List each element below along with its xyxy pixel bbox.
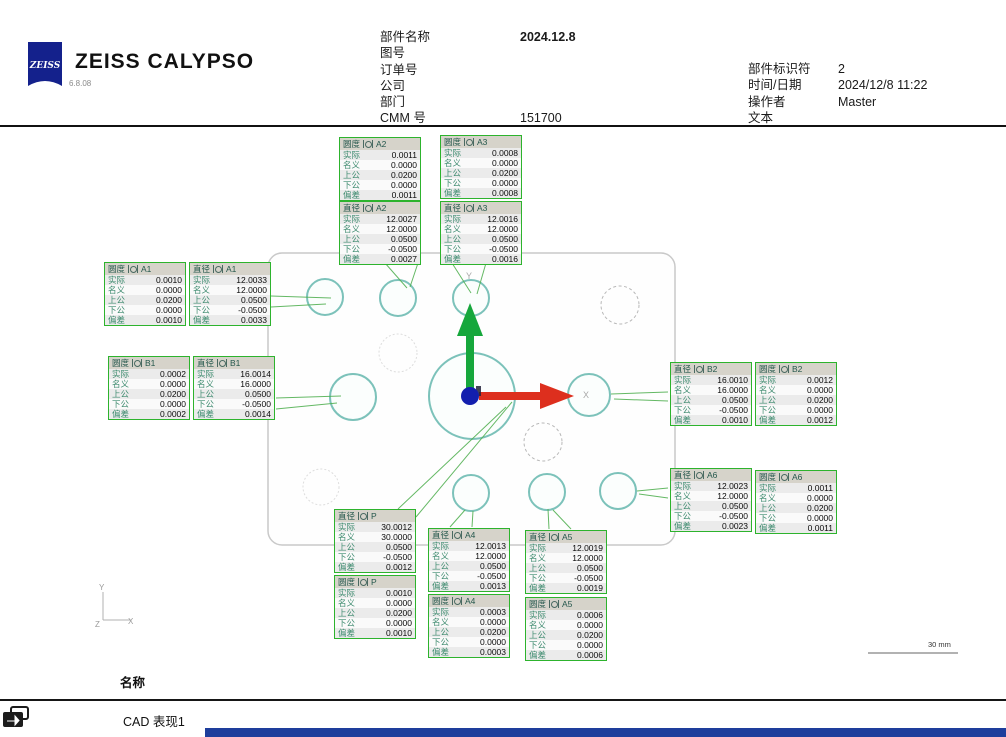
callout-row-upper_tol: 上公0.0500 — [671, 395, 751, 405]
row-label: 下公 — [338, 552, 355, 562]
row-value: 0.0500 — [386, 542, 412, 552]
row-value: 0.0012 — [386, 562, 412, 572]
callout-row-nominal: 名义0.0000 — [335, 598, 415, 608]
feature-name: A4 — [465, 530, 475, 540]
row-label: 偏差 — [112, 409, 129, 419]
characteristic-type: 圆度 — [759, 471, 776, 483]
callout-row-upper_tol: 上公0.0200 — [335, 608, 415, 618]
row-value: -0.0500 — [719, 511, 748, 521]
callout-row-nominal: 名义0.0000 — [441, 158, 521, 168]
row-value: 12.0000 — [572, 553, 603, 563]
callout-row-nominal: 名义0.0000 — [429, 617, 509, 627]
row-label: 名义 — [674, 491, 691, 501]
feature-name: B1 — [145, 358, 155, 368]
callout-title: 圆度A2 — [340, 138, 420, 150]
characteristic-type: 直径 — [193, 263, 210, 275]
row-label: 下公 — [444, 178, 461, 188]
row-label: 上公 — [759, 395, 776, 405]
row-label: 上公 — [338, 542, 355, 552]
callout-row-deviation: 偏差0.0010 — [105, 315, 185, 325]
row-value: 12.0033 — [236, 275, 267, 285]
callout-row-actual: 实际12.0016 — [441, 214, 521, 224]
callout-diameter-A6: 直径A6实际12.0023名义12.0000上公0.0500下公-0.0500偏… — [670, 468, 752, 532]
callout-row-nominal: 名义0.0000 — [340, 160, 420, 170]
callout-row-actual: 实际12.0033 — [190, 275, 270, 285]
row-value: 0.0500 — [245, 389, 271, 399]
circle-feature-icon — [452, 531, 462, 539]
row-label: 偏差 — [674, 521, 691, 531]
row-value: 0.0000 — [577, 620, 603, 630]
row-label: 名义 — [432, 551, 449, 561]
callout-row-upper_tol: 上公0.0200 — [756, 395, 836, 405]
calypso-report-page: ZEISS ZEISS CALYPSO 6.8.08 部件名称 2024.12.… — [0, 0, 1006, 737]
row-label: 下公 — [112, 399, 129, 409]
callout-row-actual: 实际0.0006 — [526, 610, 606, 620]
callout-row-actual: 实际12.0023 — [671, 481, 751, 491]
row-value: 16.0000 — [717, 385, 748, 395]
row-label: 实际 — [432, 541, 449, 551]
row-label: 偏差 — [759, 415, 776, 425]
callout-row-lower_tol: 下公0.0000 — [756, 513, 836, 523]
callout-row-nominal: 名义12.0000 — [671, 491, 751, 501]
characteristic-type: 直径 — [338, 510, 355, 522]
callout-row-nominal: 名义12.0000 — [526, 553, 606, 563]
characteristic-type: 圆度 — [529, 598, 546, 610]
circle-feature-icon — [452, 597, 462, 605]
callout-row-deviation: 偏差0.0002 — [109, 409, 189, 419]
row-value: 0.0002 — [160, 409, 186, 419]
callout-row-lower_tol: 下公0.0000 — [340, 180, 420, 190]
row-value: 0.0000 — [807, 385, 833, 395]
callout-row-upper_tol: 上公0.0200 — [526, 630, 606, 640]
callout-row-lower_tol: 下公0.0000 — [109, 399, 189, 409]
callout-row-deviation: 偏差0.0008 — [441, 188, 521, 198]
callout-row-actual: 实际16.0010 — [671, 375, 751, 385]
callout-row-lower_tol: 下公-0.0500 — [526, 573, 606, 583]
callout-diameter-B1: 直径B1实际16.0014名义16.0000上公0.0500下公-0.0500偏… — [193, 356, 275, 420]
callout-row-deviation: 偏差0.0011 — [756, 523, 836, 533]
callout-roundness-A2: 圆度A2实际0.0011名义0.0000上公0.0200下公0.0000偏差0.… — [339, 137, 421, 201]
callout-title: 直径A5 — [526, 531, 606, 543]
row-label: 下公 — [343, 180, 360, 190]
callout-row-deviation: 偏差0.0011 — [340, 190, 420, 200]
circle-feature-icon — [358, 512, 368, 520]
row-value: 30.0000 — [381, 532, 412, 542]
callout-row-deviation: 偏差0.0014 — [194, 409, 274, 419]
row-label: 名义 — [193, 285, 210, 295]
row-label: 名义 — [674, 385, 691, 395]
callout-row-nominal: 名义0.0000 — [526, 620, 606, 630]
circle-feature-icon — [694, 365, 704, 373]
feature-name: A2 — [376, 139, 386, 149]
circle-feature-icon — [694, 471, 704, 479]
callout-row-upper_tol: 上公0.0500 — [671, 501, 751, 511]
callout-row-nominal: 名义0.0000 — [109, 379, 189, 389]
callout-row-actual: 实际0.0003 — [429, 607, 509, 617]
callout-roundness-A3: 圆度A3实际0.0008名义0.0000上公0.0200下公0.0000偏差0.… — [440, 135, 522, 199]
circle-feature-icon — [132, 359, 142, 367]
callout-row-upper_tol: 上公0.0500 — [335, 542, 415, 552]
callout-row-actual: 实际12.0019 — [526, 543, 606, 553]
row-value: 0.0011 — [808, 523, 833, 533]
callout-roundness-P: 圆度P实际0.0010名义0.0000上公0.0200下公0.0000偏差0.0… — [334, 575, 416, 639]
circle-feature-icon — [213, 265, 223, 273]
callout-row-actual: 实际0.0010 — [335, 588, 415, 598]
row-label: 偏差 — [343, 190, 360, 200]
row-value: 0.0000 — [807, 513, 833, 523]
feature-name: A6 — [792, 472, 802, 482]
callout-row-upper_tol: 上公0.0200 — [109, 389, 189, 399]
row-value: 0.0000 — [577, 640, 603, 650]
callout-row-lower_tol: 下公-0.0500 — [441, 244, 521, 254]
row-value: 12.0000 — [386, 224, 417, 234]
row-value: 12.0023 — [717, 481, 748, 491]
row-label: 实际 — [343, 150, 360, 160]
row-value: 0.0000 — [807, 405, 833, 415]
callout-title: 直径A1 — [190, 263, 270, 275]
row-label: 下公 — [529, 573, 546, 583]
row-value: 12.0016 — [487, 214, 518, 224]
row-value: 0.0000 — [156, 305, 182, 315]
row-label: 名义 — [444, 158, 461, 168]
row-label: 偏差 — [338, 628, 355, 638]
characteristic-type: 直径 — [674, 469, 691, 481]
characteristic-type: 圆度 — [759, 363, 776, 375]
row-label: 偏差 — [759, 523, 776, 533]
row-label: 名义 — [343, 224, 360, 234]
callout-title: 直径B2 — [671, 363, 751, 375]
row-value: 12.0000 — [236, 285, 267, 295]
row-label: 名义 — [444, 224, 461, 234]
row-value: 0.0200 — [492, 168, 518, 178]
row-value: 0.0500 — [391, 234, 417, 244]
row-label: 实际 — [444, 148, 461, 158]
row-label: 实际 — [108, 275, 125, 285]
row-label: 实际 — [197, 369, 214, 379]
characteristic-type: 圆度 — [343, 138, 360, 150]
callout-title: 圆度A3 — [441, 136, 521, 148]
row-label: 下公 — [759, 405, 776, 415]
row-value: -0.0500 — [238, 305, 267, 315]
callout-row-deviation: 偏差0.0019 — [526, 583, 606, 593]
row-label: 下公 — [338, 618, 355, 628]
row-label: 实际 — [759, 483, 776, 493]
row-value: 16.0014 — [240, 369, 271, 379]
row-value: 0.0010 — [156, 315, 182, 325]
callout-row-lower_tol: 下公-0.0500 — [194, 399, 274, 409]
callout-row-lower_tol: 下公0.0000 — [441, 178, 521, 188]
feature-name: A6 — [707, 470, 717, 480]
row-label: 偏差 — [529, 583, 546, 593]
feature-name: A5 — [562, 599, 572, 609]
circle-feature-icon — [464, 204, 474, 212]
feature-name: A3 — [477, 137, 487, 147]
row-label: 下公 — [108, 305, 125, 315]
callout-row-deviation: 偏差0.0012 — [335, 562, 415, 572]
row-label: 上公 — [759, 503, 776, 513]
row-label: 实际 — [674, 481, 691, 491]
row-label: 上公 — [338, 608, 355, 618]
row-label: 上公 — [108, 295, 125, 305]
row-label: 下公 — [674, 405, 691, 415]
row-value: 0.0011 — [808, 483, 833, 493]
callout-roundness-B2: 圆度B2实际0.0012名义0.0000上公0.0200下公0.0000偏差0.… — [755, 362, 837, 426]
row-value: 0.0010 — [386, 628, 412, 638]
row-value: 16.0000 — [240, 379, 271, 389]
row-value: 0.0500 — [722, 501, 748, 511]
callout-row-lower_tol: 下公0.0000 — [105, 305, 185, 315]
characteristic-type: 圆度 — [444, 136, 461, 148]
characteristic-type: 直径 — [343, 202, 360, 214]
row-value: 12.0027 — [386, 214, 417, 224]
callout-row-nominal: 名义16.0000 — [194, 379, 274, 389]
row-label: 下公 — [197, 399, 214, 409]
feature-name: A4 — [465, 596, 475, 606]
row-value: 0.0200 — [391, 170, 417, 180]
callout-title: 直径A6 — [671, 469, 751, 481]
row-label: 上公 — [674, 395, 691, 405]
row-value: 0.0200 — [480, 627, 506, 637]
feature-name: A1 — [141, 264, 151, 274]
callout-row-upper_tol: 上公0.0500 — [429, 561, 509, 571]
row-value: 0.0008 — [492, 188, 518, 198]
row-label: 上公 — [193, 295, 210, 305]
row-value: 0.0016 — [492, 254, 518, 264]
callout-row-nominal: 名义12.0000 — [340, 224, 420, 234]
characteristic-type: 直径 — [674, 363, 691, 375]
row-value: 0.0200 — [160, 389, 186, 399]
feature-name: B2 — [792, 364, 802, 374]
callout-roundness-A4: 圆度A4实际0.0003名义0.0000上公0.0200下公0.0000偏差0.… — [428, 594, 510, 658]
measurement-callouts: 圆度A2实际0.0011名义0.0000上公0.0200下公0.0000偏差0.… — [0, 0, 1006, 737]
callout-row-actual: 实际0.0012 — [756, 375, 836, 385]
row-value: 0.0013 — [480, 581, 506, 591]
row-value: 0.0012 — [807, 375, 833, 385]
row-label: 上公 — [529, 630, 546, 640]
row-label: 实际 — [343, 214, 360, 224]
row-value: -0.0500 — [719, 405, 748, 415]
callout-row-deviation: 偏差0.0027 — [340, 254, 420, 264]
row-label: 名义 — [112, 379, 129, 389]
row-label: 偏差 — [193, 315, 210, 325]
callout-title: 直径P — [335, 510, 415, 522]
callout-diameter-P: 直径P实际30.0012名义30.0000上公0.0500下公-0.0500偏差… — [334, 509, 416, 573]
row-label: 实际 — [338, 522, 355, 532]
characteristic-type: 直径 — [432, 529, 449, 541]
callout-row-lower_tol: 下公-0.0500 — [429, 571, 509, 581]
row-value: -0.0500 — [388, 244, 417, 254]
row-value: 0.0006 — [577, 650, 603, 660]
callout-row-nominal: 名义30.0000 — [335, 532, 415, 542]
characteristic-type: 圆度 — [112, 357, 129, 369]
callout-row-actual: 实际0.0002 — [109, 369, 189, 379]
row-value: 0.0027 — [391, 254, 417, 264]
row-value: 0.0012 — [807, 415, 833, 425]
row-value: 12.0000 — [487, 224, 518, 234]
circle-feature-icon — [128, 265, 138, 273]
feature-name: A3 — [477, 203, 487, 213]
row-value: 0.0500 — [480, 561, 506, 571]
row-value: 0.0000 — [160, 399, 186, 409]
row-label: 上公 — [343, 234, 360, 244]
row-value: 0.0011 — [392, 190, 417, 200]
row-label: 下公 — [759, 513, 776, 523]
row-label: 下公 — [529, 640, 546, 650]
row-value: 0.0500 — [577, 563, 603, 573]
row-value: 0.0500 — [722, 395, 748, 405]
callout-title: 直径A4 — [429, 529, 509, 541]
row-label: 偏差 — [197, 409, 214, 419]
callout-diameter-A2: 直径A2实际12.0027名义12.0000上公0.0500下公-0.0500偏… — [339, 201, 421, 265]
feature-name: A2 — [376, 203, 386, 213]
row-value: 0.0000 — [391, 160, 417, 170]
callout-row-deviation: 偏差0.0023 — [671, 521, 751, 531]
row-value: 0.0200 — [156, 295, 182, 305]
row-label: 实际 — [529, 610, 546, 620]
row-label: 偏差 — [432, 581, 449, 591]
row-label: 实际 — [759, 375, 776, 385]
row-label: 实际 — [432, 607, 449, 617]
row-value: 0.0000 — [480, 617, 506, 627]
characteristic-type: 圆度 — [432, 595, 449, 607]
callout-roundness-A6: 圆度A6实际0.0011名义0.0000上公0.0200下公0.0000偏差0.… — [755, 470, 837, 534]
callout-title: 圆度A6 — [756, 471, 836, 483]
row-label: 实际 — [529, 543, 546, 553]
row-label: 下公 — [343, 244, 360, 254]
callout-row-nominal: 名义12.0000 — [429, 551, 509, 561]
row-value: 0.0000 — [492, 158, 518, 168]
callout-row-deviation: 偏差0.0006 — [526, 650, 606, 660]
row-label: 名义 — [338, 532, 355, 542]
callout-roundness-A5: 圆度A5实际0.0006名义0.0000上公0.0200下公0.0000偏差0.… — [525, 597, 607, 661]
callout-row-upper_tol: 上公0.0200 — [340, 170, 420, 180]
callout-title: 圆度B1 — [109, 357, 189, 369]
row-label: 实际 — [444, 214, 461, 224]
row-value: 0.0019 — [577, 583, 603, 593]
row-label: 上公 — [529, 563, 546, 573]
row-label: 下公 — [432, 571, 449, 581]
callout-title: 直径B1 — [194, 357, 274, 369]
callout-roundness-A1: 圆度A1实际0.0010名义0.0000上公0.0200下公0.0000偏差0.… — [104, 262, 186, 326]
callout-row-upper_tol: 上公0.0500 — [526, 563, 606, 573]
row-value: 0.0000 — [386, 618, 412, 628]
circle-feature-icon — [549, 600, 559, 608]
characteristic-type: 直径 — [444, 202, 461, 214]
row-value: 0.0010 — [156, 275, 182, 285]
callout-row-nominal: 名义16.0000 — [671, 385, 751, 395]
callout-row-deviation: 偏差0.0016 — [441, 254, 521, 264]
feature-name: P — [371, 577, 377, 587]
row-value: 0.0011 — [392, 150, 417, 160]
callout-row-lower_tol: 下公-0.0500 — [671, 405, 751, 415]
row-label: 偏差 — [444, 188, 461, 198]
row-label: 下公 — [193, 305, 210, 315]
callout-row-upper_tol: 上公0.0200 — [105, 295, 185, 305]
characteristic-type: 圆度 — [338, 576, 355, 588]
callout-row-lower_tol: 下公0.0000 — [429, 637, 509, 647]
callout-row-lower_tol: 下公-0.0500 — [340, 244, 420, 254]
callout-row-deviation: 偏差0.0033 — [190, 315, 270, 325]
callout-row-lower_tol: 下公0.0000 — [335, 618, 415, 628]
row-label: 下公 — [432, 637, 449, 647]
row-label: 名义 — [759, 493, 776, 503]
callout-row-actual: 实际12.0027 — [340, 214, 420, 224]
callout-row-upper_tol: 上公0.0200 — [756, 503, 836, 513]
callout-row-deviation: 偏差0.0003 — [429, 647, 509, 657]
callout-row-lower_tol: 下公-0.0500 — [190, 305, 270, 315]
row-label: 实际 — [112, 369, 129, 379]
callout-row-upper_tol: 上公0.0500 — [340, 234, 420, 244]
callout-row-nominal: 名义0.0000 — [756, 385, 836, 395]
callout-row-actual: 实际0.0008 — [441, 148, 521, 158]
callout-row-deviation: 偏差0.0010 — [335, 628, 415, 638]
row-value: 0.0006 — [577, 610, 603, 620]
row-label: 实际 — [674, 375, 691, 385]
callout-row-actual: 实际16.0014 — [194, 369, 274, 379]
callout-title: 圆度B2 — [756, 363, 836, 375]
row-value: 16.0010 — [717, 375, 748, 385]
row-label: 名义 — [529, 620, 546, 630]
callout-diameter-A4: 直径A4实际12.0013名义12.0000上公0.0500下公-0.0500偏… — [428, 528, 510, 592]
callout-diameter-A5: 直径A5实际12.0019名义12.0000上公0.0500下公-0.0500偏… — [525, 530, 607, 594]
callout-row-nominal: 名义0.0000 — [105, 285, 185, 295]
callout-row-nominal: 名义12.0000 — [190, 285, 270, 295]
callout-row-deviation: 偏差0.0012 — [756, 415, 836, 425]
callout-row-actual: 实际0.0011 — [756, 483, 836, 493]
row-value: -0.0500 — [477, 571, 506, 581]
callout-row-upper_tol: 上公0.0200 — [429, 627, 509, 637]
row-label: 偏差 — [444, 254, 461, 264]
row-label: 偏差 — [529, 650, 546, 660]
row-label: 偏差 — [432, 647, 449, 657]
row-value: -0.0500 — [489, 244, 518, 254]
row-value: 0.0500 — [492, 234, 518, 244]
row-label: 名义 — [338, 598, 355, 608]
row-value: 0.0003 — [480, 607, 506, 617]
callout-row-deviation: 偏差0.0013 — [429, 581, 509, 591]
row-label: 下公 — [674, 511, 691, 521]
row-label: 名义 — [432, 617, 449, 627]
row-label: 上公 — [343, 170, 360, 180]
row-label: 上公 — [444, 168, 461, 178]
callout-diameter-B2: 直径B2实际16.0010名义16.0000上公0.0500下公-0.0500偏… — [670, 362, 752, 426]
row-value: 12.0000 — [475, 551, 506, 561]
row-value: 0.0000 — [156, 285, 182, 295]
callout-row-lower_tol: 下公0.0000 — [526, 640, 606, 650]
row-value: 0.0200 — [807, 503, 833, 513]
circle-feature-icon — [779, 365, 789, 373]
callout-row-lower_tol: 下公-0.0500 — [671, 511, 751, 521]
feature-name: A5 — [562, 532, 572, 542]
row-label: 偏差 — [343, 254, 360, 264]
feature-name: P — [371, 511, 377, 521]
row-label: 上公 — [432, 561, 449, 571]
row-value: 0.0008 — [492, 148, 518, 158]
row-value: 0.0002 — [160, 369, 186, 379]
row-value: 0.0000 — [807, 493, 833, 503]
characteristic-type: 直径 — [197, 357, 214, 369]
row-value: -0.0500 — [574, 573, 603, 583]
row-value: 12.0013 — [475, 541, 506, 551]
circle-feature-icon — [464, 138, 474, 146]
callout-row-actual: 实际0.0010 — [105, 275, 185, 285]
circle-feature-icon — [779, 473, 789, 481]
row-value: 0.0010 — [722, 415, 748, 425]
row-label: 实际 — [193, 275, 210, 285]
row-label: 上公 — [674, 501, 691, 511]
feature-name: B2 — [707, 364, 717, 374]
callout-title: 直径A2 — [340, 202, 420, 214]
